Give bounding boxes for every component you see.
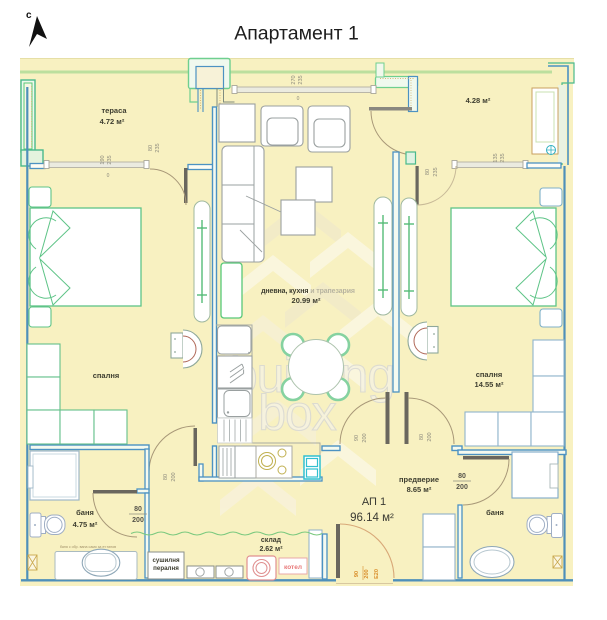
svg-text:4.75 м²: 4.75 м² xyxy=(73,520,98,529)
svg-text:235: 235 xyxy=(155,143,161,152)
svg-text:предверие: предверие xyxy=(399,475,439,484)
svg-text:200: 200 xyxy=(456,484,468,491)
svg-text:пералня: пералня xyxy=(153,565,179,572)
svg-text:235: 235 xyxy=(433,167,439,176)
svg-text:90: 90 xyxy=(354,571,360,577)
svg-text:200: 200 xyxy=(364,569,370,578)
svg-text:200: 200 xyxy=(427,432,433,441)
svg-text:сушилня: сушилня xyxy=(152,557,180,564)
svg-text:80: 80 xyxy=(148,145,154,151)
svg-text:спалня: спалня xyxy=(93,371,120,380)
svg-text:АП 1: АП 1 xyxy=(362,496,386,508)
svg-text:80: 80 xyxy=(425,169,431,175)
svg-text:14.55 м²: 14.55 м² xyxy=(475,380,504,389)
svg-text:135: 135 xyxy=(493,153,499,162)
svg-text:90: 90 xyxy=(354,435,360,441)
svg-text:190: 190 xyxy=(100,155,106,164)
svg-text:4.28 м²: 4.28 м² xyxy=(466,96,491,105)
svg-text:с: с xyxy=(26,10,32,21)
svg-text:4.72 м²: 4.72 м² xyxy=(100,117,125,126)
svg-text:0: 0 xyxy=(107,173,110,179)
svg-text:тераса: тераса xyxy=(101,106,127,115)
svg-text:96.14 м²: 96.14 м² xyxy=(350,512,394,524)
svg-text:спалня: спалня xyxy=(476,370,503,379)
svg-text:баня: баня xyxy=(76,508,94,517)
svg-text:дневна, кухня и трапезария: дневна, кухня и трапезария xyxy=(261,288,355,295)
svg-text:20.99 м²: 20.99 м² xyxy=(292,296,321,305)
svg-text:80: 80 xyxy=(419,434,425,440)
svg-text:Е20: Е20 xyxy=(374,569,380,579)
svg-text:200: 200 xyxy=(132,517,144,524)
svg-text:270: 270 xyxy=(291,75,297,84)
svg-text:0: 0 xyxy=(297,96,300,102)
svg-text:200: 200 xyxy=(362,433,368,442)
svg-text:котел: котел xyxy=(284,564,302,571)
svg-text:80: 80 xyxy=(134,506,142,513)
svg-text:склад: склад xyxy=(261,537,282,544)
svg-text:баня: баня xyxy=(486,508,504,517)
svg-text:235: 235 xyxy=(500,153,506,162)
svg-text:2.62 м²: 2.62 м² xyxy=(259,546,283,553)
svg-text:235: 235 xyxy=(107,155,113,164)
svg-text:80: 80 xyxy=(163,474,169,480)
svg-text:80: 80 xyxy=(458,473,466,480)
svg-text:Апартамент 1: Апартамент 1 xyxy=(234,23,359,45)
svg-text:235: 235 xyxy=(298,75,304,84)
svg-text:200: 200 xyxy=(171,472,177,481)
svg-text:баня с обр. вана само за ет.ти: баня с обр. вана само за ет.типов xyxy=(60,545,116,549)
svg-text:8.65 м²: 8.65 м² xyxy=(407,485,432,494)
